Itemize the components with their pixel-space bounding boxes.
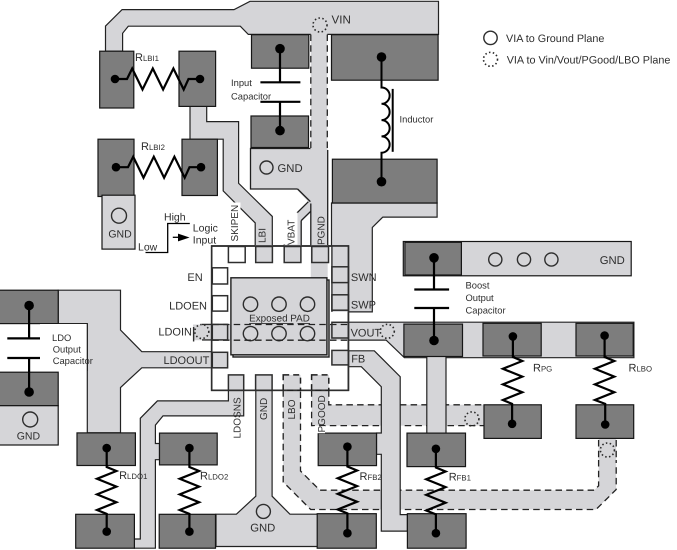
svg-text:LBO: LBO (287, 399, 298, 419)
svg-text:FB: FB (351, 354, 365, 366)
svg-text:RLBI1: RLBI1 (135, 52, 159, 64)
svg-text:PGND: PGND (317, 216, 328, 245)
svg-text:SWP: SWP (351, 300, 376, 312)
svg-text:EN: EN (187, 272, 202, 284)
svg-text:RLBI2: RLBI2 (141, 141, 165, 153)
svg-text:GND: GND (278, 163, 303, 175)
svg-text:Capacitor: Capacitor (53, 355, 93, 366)
svg-text:GND: GND (17, 431, 41, 443)
svg-text:High: High (164, 212, 186, 224)
svg-text:PGOOD: PGOOD (317, 395, 328, 432)
svg-text:LBI: LBI (258, 228, 269, 243)
svg-text:Output: Output (53, 344, 82, 355)
svg-text:SKIPEN: SKIPEN (230, 205, 241, 242)
svg-text:RFB1: RFB1 (449, 472, 471, 484)
svg-text:Capacitor: Capacitor (466, 305, 506, 316)
svg-text:GND: GND (108, 229, 132, 241)
svg-text:RLDO1: RLDO1 (119, 470, 147, 482)
svg-text:GND: GND (259, 398, 270, 420)
svg-text:RFB2: RFB2 (360, 471, 382, 483)
svg-text:SWN: SWN (351, 272, 377, 284)
svg-text:LDOIN: LDOIN (158, 327, 192, 339)
svg-text:VIA to Vin/Vout/PGood/LBO Pla: VIA to Vin/Vout/PGood/LBO Plane (507, 55, 671, 67)
svg-text:LDOOUT: LDOOUT (164, 355, 210, 367)
svg-text:RLDO2: RLDO2 (200, 470, 228, 482)
svg-text:Input: Input (231, 77, 252, 88)
svg-text:RPG: RPG (533, 363, 552, 375)
svg-text:Low: Low (138, 242, 158, 254)
svg-text:LDO: LDO (52, 332, 71, 343)
svg-text:GND: GND (600, 255, 625, 267)
svg-text:GND: GND (250, 523, 275, 535)
svg-text:LDOSNS: LDOSNS (232, 397, 243, 438)
svg-text:Capacitor: Capacitor (231, 91, 271, 102)
svg-text:LDOEN: LDOEN (169, 301, 207, 313)
svg-text:Logic: Logic (193, 223, 218, 235)
svg-text:VBAT: VBAT (287, 220, 298, 245)
svg-text:Boost: Boost (466, 280, 490, 291)
svg-text:VIA to Ground Plane: VIA to Ground Plane (506, 33, 604, 45)
svg-text:Output: Output (466, 292, 495, 303)
svg-text:Exposed PAD: Exposed PAD (249, 314, 310, 325)
svg-text:RLBO: RLBO (629, 363, 653, 375)
svg-text:Input: Input (193, 234, 216, 246)
svg-text:VOUT: VOUT (351, 328, 382, 340)
svg-text:Inductor: Inductor (400, 114, 434, 125)
svg-text:VIN: VIN (332, 14, 351, 27)
